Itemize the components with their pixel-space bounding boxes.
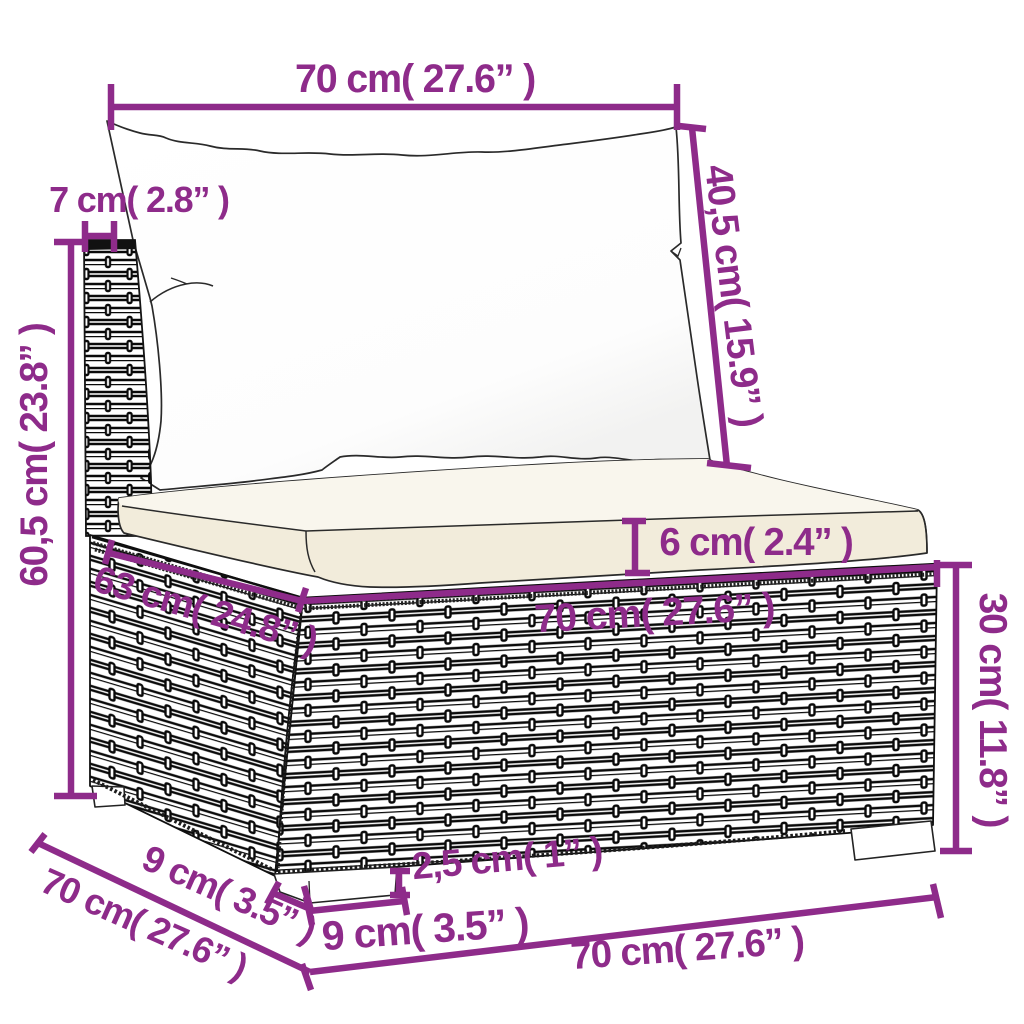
svg-text:60,5 cm( 23.8” ): 60,5 cm( 23.8” ): [13, 323, 56, 586]
svg-text:70 cm( 27.6” ): 70 cm( 27.6” ): [295, 57, 535, 101]
svg-text:30 cm( 11.8” ): 30 cm( 11.8” ): [971, 593, 1014, 828]
svg-text:6 cm( 2.4” ): 6 cm( 2.4” ): [659, 521, 852, 564]
svg-text:7 cm( 2.8” ): 7 cm( 2.8” ): [49, 179, 229, 220]
